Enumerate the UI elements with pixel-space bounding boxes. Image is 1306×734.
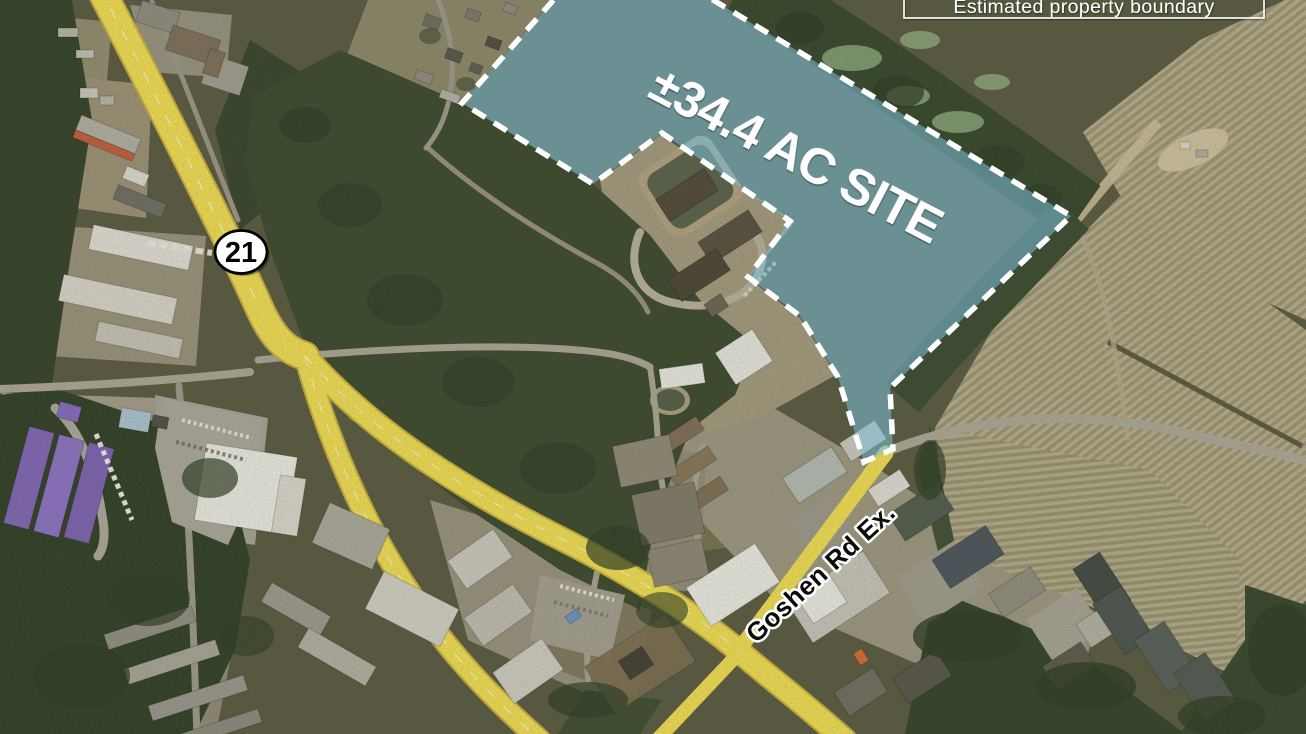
- legend: Estimated property boundary: [904, 0, 1264, 18]
- route-21-shield: 21: [215, 231, 270, 277]
- aerial-photo: ±34.4 AC SITE Goshen Rd Ex. 21 Estimated…: [0, 0, 1306, 734]
- route-number: 21: [225, 237, 257, 269]
- legend-boundary-label: Estimated property boundary: [953, 0, 1214, 18]
- aerial-site-map: ±34.4 AC SITE Goshen Rd Ex. 21 Estimated…: [0, 0, 1306, 734]
